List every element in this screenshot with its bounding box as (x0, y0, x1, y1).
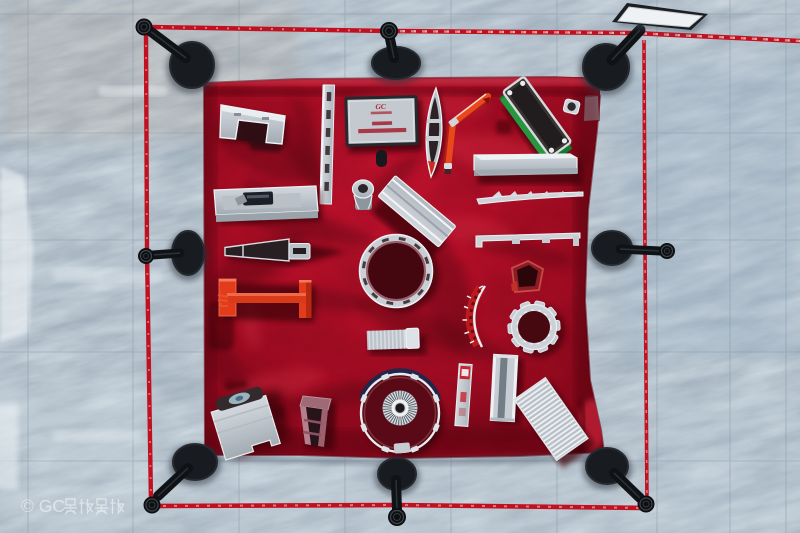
svg-text:GC: GC (375, 102, 387, 111)
svg-text:© GC: © GC (21, 496, 65, 516)
